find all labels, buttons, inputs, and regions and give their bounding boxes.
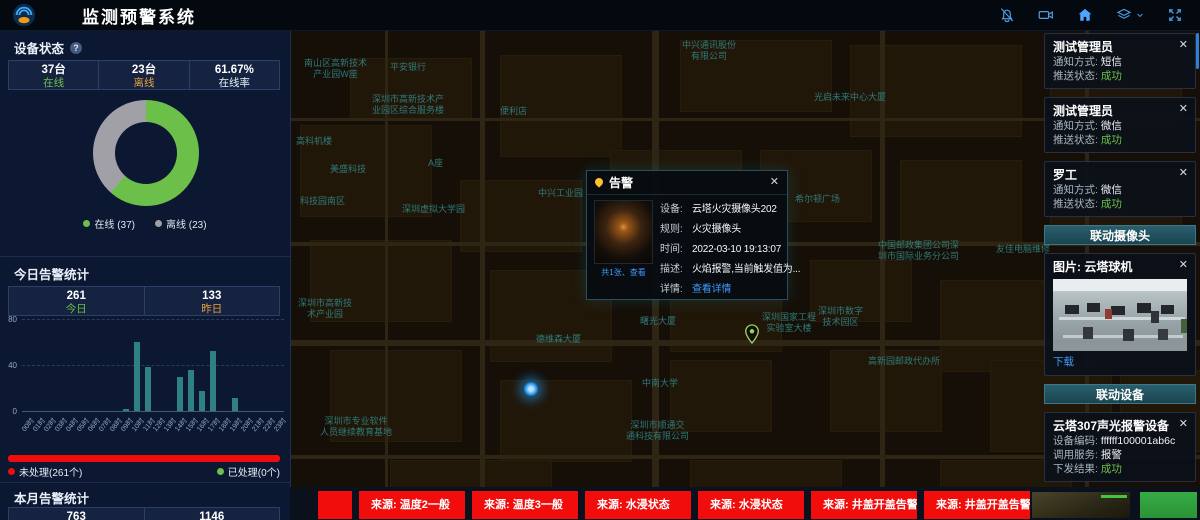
alert-row-time: 时间: 2022-03-10 19:13:07 xyxy=(660,240,781,260)
notification-card-title: 罗工 xyxy=(1053,167,1187,183)
row-label: 通知方式: xyxy=(1053,56,1101,68)
month-alarms-title: 本月告警统计 xyxy=(14,488,89,507)
photo-detail xyxy=(1053,343,1187,351)
gridline xyxy=(22,319,284,320)
alert-row-desc: 描述: 火焰报警,当前触发值为... xyxy=(660,260,781,280)
ticker-green-thumbnail[interactable] xyxy=(1140,492,1197,518)
device-status-stats: 37台 在线 23台 离线 61.67% 在线率 xyxy=(8,60,280,90)
row-label: 调用服务: xyxy=(1053,449,1101,461)
divider xyxy=(0,256,290,257)
map-building-block xyxy=(390,460,552,490)
photo-detail xyxy=(1111,306,1125,315)
map-building-block xyxy=(850,45,1022,137)
notification-card: 罗工✕通知方式: 微信推送状态: 成功 xyxy=(1044,161,1196,217)
camera-card-title: 图片: 云塔球机 xyxy=(1053,259,1187,275)
alert-popup-body: 共1张、查看 设备: 云塔火灾摄像头202 规则: 火灾摄像头 时间: 2022… xyxy=(587,195,787,300)
right-sidebar: 测试管理员✕通知方式: 短信推送状态: 成功测试管理员✕通知方式: 微信推送状态… xyxy=(1044,33,1196,520)
alert-row-device: 设备: 云塔火灾摄像头202 xyxy=(660,200,781,220)
alert-popup-header: 告警 ✕ xyxy=(587,171,787,195)
stat-month-2: 1146 xyxy=(144,508,280,520)
alert-thumb-caption[interactable]: 共1张、查看 xyxy=(594,267,653,278)
photo-detail xyxy=(1123,329,1134,341)
linked-device-card-row: 下发结果: 成功 xyxy=(1053,462,1187,476)
row-value: 成功 xyxy=(1101,198,1122,210)
today-alarms-bar-chart: 8040000时01时02时03时04时05时06时07时08时09时10时11… xyxy=(0,312,290,442)
map-place-label: 高新园邮政代办所 xyxy=(868,356,940,367)
green-dot-icon xyxy=(217,468,224,475)
linked-camera-card: 图片: 云塔球机 ✕ 下载 xyxy=(1044,253,1196,376)
linked-device-card: 云塔307声光报警设备✕设备编码: ffffff100001ab6c调用服务: … xyxy=(1044,412,1196,482)
map-place-label: 深圳市专业软件 人员继续教育基地 xyxy=(320,416,392,438)
ticker-alert-tile[interactable]: 来源: 温度2一般 xyxy=(359,491,465,519)
row-label: 推送状态: xyxy=(1053,198,1101,210)
stat-offline: 23台 离线 xyxy=(98,61,188,89)
month-alarms-stats: 763 1146 xyxy=(8,507,280,520)
notification-card-row: 推送状态: 成功 xyxy=(1053,133,1187,147)
row-value: 成功 xyxy=(1101,134,1122,146)
stat-online-rate: 61.67% 在线率 xyxy=(189,61,279,89)
photo-detail xyxy=(1105,309,1112,319)
photo-detail xyxy=(1137,303,1151,313)
alert-row-rule: 规则: 火灾摄像头 xyxy=(660,220,781,240)
notification-card-row: 通知方式: 微信 xyxy=(1053,183,1187,197)
download-link[interactable]: 下载 xyxy=(1053,354,1074,369)
stat-yesterday: 133 昨日 xyxy=(144,287,280,315)
y-axis-tick: 40 xyxy=(0,361,17,370)
close-icon[interactable]: ✕ xyxy=(1179,417,1188,430)
row-label: 通知方式: xyxy=(1053,120,1101,132)
alert-detail-rows: 设备: 云塔火灾摄像头202 规则: 火灾摄像头 时间: 2022-03-10 … xyxy=(660,200,781,300)
chevron-down-icon xyxy=(1135,10,1145,20)
red-dot-icon xyxy=(8,468,15,475)
notification-card: 测试管理员✕通知方式: 微信推送状态: 成功 xyxy=(1044,97,1196,153)
legend-label: 在线 (37) xyxy=(94,216,135,231)
close-icon[interactable]: ✕ xyxy=(770,177,779,188)
notification-card-title: 测试管理员 xyxy=(1053,103,1187,119)
map-place-label: 高科机楼 xyxy=(296,136,332,147)
scrollbar-thumb[interactable] xyxy=(1196,33,1199,69)
ticker-alert-tile[interactable]: 来源: 井盖开盖告警 xyxy=(811,491,917,519)
legend-item[interactable]: 离线 (23) xyxy=(155,216,207,231)
layers-icon xyxy=(1115,6,1133,24)
map-place-label: 美盛科技 xyxy=(330,164,366,175)
help-icon[interactable]: ? xyxy=(70,42,82,54)
map-place-label: 深圳市高新技 术产业园 xyxy=(298,298,352,320)
map-place-label: 中南大学 xyxy=(642,378,678,389)
bar-hour-11时 xyxy=(145,367,151,411)
ticker-alert-tile[interactable]: 来源: 水浸状态 xyxy=(698,491,804,519)
app-logo-icon xyxy=(12,3,36,27)
map-place-label: 光启未来中心大厦 xyxy=(814,92,886,103)
unprocessed-label: 未处理(261个) xyxy=(8,464,82,479)
map-place-label: 德维森大厦 xyxy=(536,334,581,345)
camera-snapshot-image[interactable] xyxy=(1053,279,1187,351)
map-place-label: 深圳国家工程 实验室大楼 xyxy=(762,312,816,334)
y-axis-tick: 80 xyxy=(0,315,17,324)
row-label: 通知方式: xyxy=(1053,184,1101,196)
photo-detail xyxy=(1181,319,1187,333)
notification-card-row: 通知方式: 短信 xyxy=(1053,55,1187,69)
app: 监测预警系统 xyxy=(0,0,1200,520)
photo-detail xyxy=(1151,311,1159,323)
map-marker-blue[interactable] xyxy=(523,381,539,397)
bell-muted-icon[interactable] xyxy=(998,6,1016,24)
donut-legend: 在线 (37)离线 (23) xyxy=(0,216,290,231)
photo-detail xyxy=(1161,305,1174,314)
legend-label: 离线 (23) xyxy=(166,216,207,231)
ticker-camera-thumbnail[interactable] xyxy=(1032,492,1130,518)
row-value: 成功 xyxy=(1101,70,1122,82)
stat-today: 261 今日 xyxy=(9,287,144,315)
alert-popup: 告警 ✕ 共1张、查看 设备: 云塔火灾摄像头202 规则: 火灾摄像头 xyxy=(586,170,788,300)
map-marker-pin[interactable] xyxy=(743,323,761,345)
legend-item[interactable]: 在线 (37) xyxy=(83,216,135,231)
photo-detail xyxy=(1158,329,1168,340)
row-label: 下发结果: xyxy=(1053,463,1101,475)
row-value: 微信 xyxy=(1101,120,1122,132)
map-place-label: 深圳市高新技术产 业园区综合服务楼 xyxy=(372,94,444,116)
bar-hour-15时 xyxy=(188,370,194,411)
notification-card: 测试管理员✕通知方式: 短信推送状态: 成功 xyxy=(1044,33,1196,89)
photo-detail xyxy=(1083,327,1093,339)
y-axis-tick: 0 xyxy=(0,407,17,416)
device-status-donut-chart xyxy=(93,100,199,206)
map-building-block xyxy=(500,380,632,462)
bar-hour-10时 xyxy=(134,342,140,411)
process-legend: 未处理(261个) 已处理(0个) xyxy=(8,464,280,479)
alert-popup-title: 告警 xyxy=(609,174,633,191)
row-value: ffffff100001ab6c xyxy=(1101,435,1175,447)
close-icon[interactable]: ✕ xyxy=(1179,38,1188,51)
row-value: 成功 xyxy=(1101,463,1122,475)
photo-detail xyxy=(1087,303,1100,312)
close-icon[interactable]: ✕ xyxy=(1179,258,1188,271)
alert-ticker: 来源: 温度2一般来源: 温度3一般来源: 水浸状态来源: 水浸状态来源: 井盖… xyxy=(290,487,1200,520)
header-actions xyxy=(998,6,1184,24)
top-header: 监测预警系统 xyxy=(0,0,1200,31)
gridline xyxy=(22,411,284,412)
photo-detail xyxy=(1065,305,1079,314)
map-place-label: A座 xyxy=(428,158,443,169)
fullscreen-icon[interactable] xyxy=(1166,6,1184,24)
row-label: 推送状态: xyxy=(1053,134,1101,146)
ticker-alert-tile[interactable]: 来源: 水浸状态 xyxy=(585,491,691,519)
linked-device-card-row: 设备编码: ffffff100001ab6c xyxy=(1053,434,1187,448)
unprocessed-progress-bar xyxy=(8,455,280,462)
map-building-block xyxy=(690,460,842,490)
linked-devices-header: 联动设备 xyxy=(1044,384,1196,404)
pin-icon xyxy=(593,176,604,187)
legend-dot-icon xyxy=(83,220,90,227)
map-place-label: 深圳市顺通交 通科技有限公司 xyxy=(626,420,689,442)
bar-hour-16时 xyxy=(199,391,205,411)
today-alarms-title: 今日告警统计 xyxy=(14,264,89,283)
layers-menu[interactable] xyxy=(1115,6,1145,24)
row-value: 微信 xyxy=(1101,184,1122,196)
row-label: 推送状态: xyxy=(1053,70,1101,82)
bar-hour-17时 xyxy=(210,351,216,411)
home-icon[interactable] xyxy=(1076,6,1094,24)
view-detail-link[interactable]: 查看详情 xyxy=(692,280,731,300)
map-place-label: 中兴通讯股份 有限公司 xyxy=(682,40,736,62)
notification-card-row: 推送状态: 成功 xyxy=(1053,197,1187,211)
legend-dot-icon xyxy=(155,220,162,227)
notification-card-row: 推送状态: 成功 xyxy=(1053,69,1187,83)
map-place-label: 平安银行 xyxy=(390,62,426,73)
device-status-title: 设备状态 ? xyxy=(14,38,82,57)
photo-detail xyxy=(1059,317,1185,320)
close-icon[interactable]: ✕ xyxy=(1179,166,1188,179)
alert-row-detail: 详情: 查看详情 xyxy=(660,280,781,300)
bar-hour-19时 xyxy=(232,398,238,411)
map-place-label: 深圳市数字 技术园区 xyxy=(818,306,863,328)
map-place-label: 希尔顿广场 xyxy=(795,194,840,205)
page-title: 监测预警系统 xyxy=(82,3,196,28)
map-place-label: 科技园南区 xyxy=(300,196,345,207)
notification-card-title: 测试管理员 xyxy=(1053,39,1187,55)
map-place-label: 南山区高新技术 产业园W座 xyxy=(304,58,367,80)
stat-online: 37台 在线 xyxy=(9,61,98,89)
processed-label: 已处理(0个) xyxy=(217,464,280,479)
row-label: 设备编码: xyxy=(1053,435,1101,447)
linked-camera-header: 联动摄像头 xyxy=(1044,225,1196,245)
close-icon[interactable]: ✕ xyxy=(1179,102,1188,115)
linked-device-card-title: 云塔307声光报警设备 xyxy=(1053,418,1187,434)
ticker-alert-tile[interactable]: 来源: 温度3一般 xyxy=(472,491,578,519)
map-place-label: 友佳电脑维修 xyxy=(996,244,1050,255)
alert-snapshot-image[interactable] xyxy=(594,200,653,264)
map-place-label: 深圳虚拟大学园 xyxy=(402,204,465,215)
map-place-label: 便利店 xyxy=(500,106,527,117)
map-road xyxy=(480,30,485,490)
photo-detail xyxy=(1053,279,1187,291)
bar-hour-09时 xyxy=(123,409,129,411)
map-place-label: 曙光大厦 xyxy=(640,316,676,327)
gridline xyxy=(22,365,284,366)
map-building-block xyxy=(900,160,1022,242)
video-camera-icon[interactable] xyxy=(1037,6,1055,24)
notification-card-row: 通知方式: 微信 xyxy=(1053,119,1187,133)
bar-hour-14时 xyxy=(177,377,183,412)
map-place-label: 中国邮政集团公司深 圳市国际业务分公司 xyxy=(878,240,959,262)
row-value: 短信 xyxy=(1101,56,1122,68)
map-place-label: 中兴工业园 xyxy=(538,188,583,199)
alert-ticker-tiles: 来源: 温度2一般来源: 温度3一般来源: 水浸状态来源: 水浸状态来源: 井盖… xyxy=(318,491,1030,519)
ticker-alert-tile[interactable]: 来源: 井盖开盖告警 xyxy=(924,491,1030,519)
left-sidebar: 设备状态 ? 37台 在线 23台 离线 61.67% 在线率 在线 (37)离… xyxy=(0,30,291,520)
row-value: 报警 xyxy=(1101,449,1122,461)
divider xyxy=(0,482,290,483)
ticker-alert-tile[interactable] xyxy=(318,491,352,519)
alert-thumb-wrap: 共1张、查看 xyxy=(594,200,653,300)
linked-device-card-row: 调用服务: 报警 xyxy=(1053,448,1187,462)
stat-month-1: 763 xyxy=(9,508,144,520)
